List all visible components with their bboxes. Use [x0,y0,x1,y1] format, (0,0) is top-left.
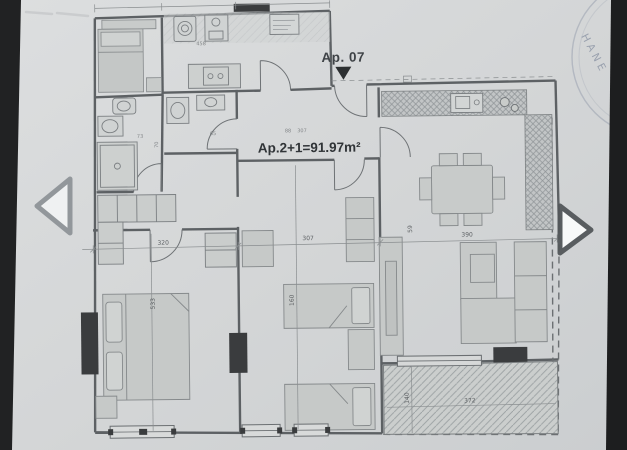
dim-room-right-width: 390 [461,231,473,238]
wardrobe [346,197,375,261]
image-viewer: HANE [0,0,627,450]
area-label: Ap.2+1=91.97m² [258,140,361,156]
dim-wc-width: 65 [210,131,216,137]
tv-icon [385,261,397,335]
dim-bath-a: 73 [137,134,143,140]
dim-hall-b: 307 [297,128,307,134]
chair [440,214,458,226]
sofa-seat [461,298,516,344]
floor-plan-photo: HANE [0,0,627,450]
dim-room-left-width: 320 [157,240,169,247]
apartment-label: Ap. 07 [321,50,365,65]
hob-icon [500,98,509,107]
spec-label-box [270,14,299,34]
chair [493,177,505,199]
dining-table [431,165,492,214]
coffee-table [470,254,494,282]
nightstand [348,329,374,369]
master-bedroom [95,293,190,418]
chair [420,178,432,200]
shower-icon [97,142,138,190]
chair [464,213,482,225]
toilet-icon [113,98,136,114]
bench [96,396,117,418]
chair [439,154,457,166]
desk [242,230,273,266]
dim-closet-width: 458 [196,41,206,47]
dim-room-middle-width: 307 [302,235,314,242]
dim-balcony-depth: 140 [404,392,411,404]
dim-room-left-depth: 533 [150,298,157,310]
sink-unit-icon [205,15,228,41]
washer-icon [174,16,196,41]
chair [463,153,481,165]
washbasin-2-icon [167,97,189,123]
dim-hall-a: 88 [285,128,291,134]
sofa-back [514,242,547,342]
dim-bath-b: 70 [154,141,160,147]
dim-bed-length: 160 [289,294,296,306]
kitchen-counter-side [525,115,553,230]
dim-wall-offset: 59 [407,225,414,233]
dim-balcony-width: 372 [464,397,476,404]
